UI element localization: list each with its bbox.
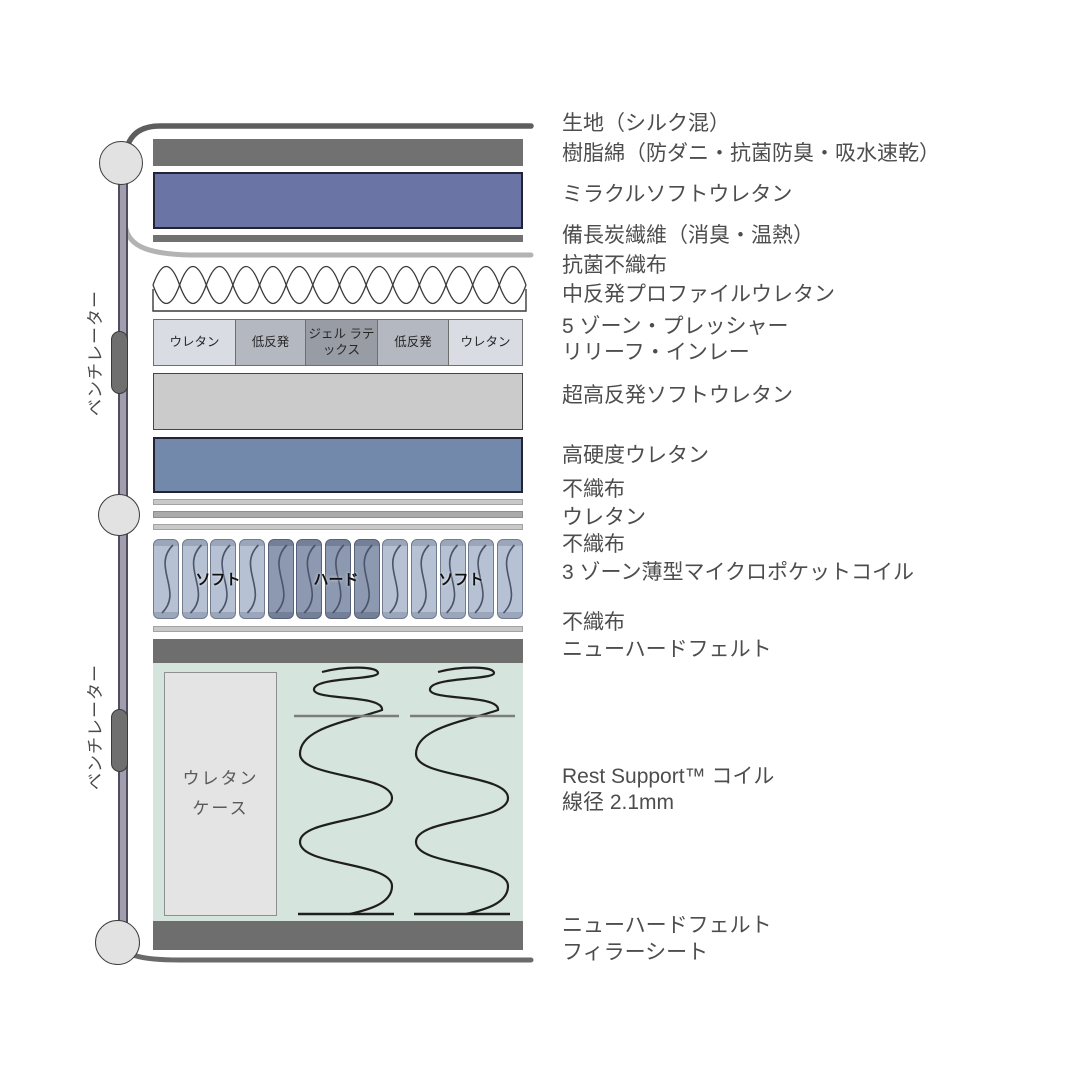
ventilator-port-bottom (95, 920, 140, 965)
layer-miracle-soft-urethane (153, 172, 523, 229)
zone-cell-urethane-right: ウレタン (449, 320, 522, 365)
label-super-high-resilience: 超高反発ソフトウレタン (562, 383, 793, 409)
label-5zone-line2: リリーフ・インレー (562, 340, 788, 366)
zone-cell-urethane-left: ウレタン (154, 320, 236, 365)
layer-new-hard-felt-bottom (153, 921, 523, 950)
label-group-bottom: ニューハードフェルト フィラーシート (562, 912, 772, 966)
label-new-hard-felt-bottom: ニューハードフェルト (562, 912, 772, 939)
layer-micro-pocket-coils: ソフト ハード ソフト (153, 539, 523, 619)
layer-charcoal-fiber (153, 235, 523, 242)
zone-cell-gel-latex: ジェル ラテックス (306, 320, 378, 365)
layer-high-hardness-urethane (153, 437, 523, 493)
label-profile-urethane: 中反発プロファイルウレタン (562, 280, 835, 310)
label-group-mid-upper: 備長炭繊維（消臭・温熱） 抗菌不織布 中反発プロファイルウレタン (562, 221, 835, 310)
label-rest-support-coil: Rest Support™ コイル (562, 764, 774, 790)
layer-urethane-thin (153, 511, 523, 518)
ventilator-tube (118, 162, 128, 945)
label-group-rest-support: Rest Support™ コイル 線径 2.1mm (562, 764, 774, 816)
label-group-cover: 生地（シルク混） 樹脂綿（防ダニ・抗菌防臭・吸水速乾） (562, 109, 940, 168)
ventilator-port-middle (98, 494, 140, 536)
label-5zone-line1: 5 ゾーン・プレッシャー (562, 314, 788, 340)
coil-zone-label-hard: ハード (313, 569, 358, 590)
rest-support-coil-right (408, 664, 518, 916)
label-antibacterial-nonwoven: 抗菌不織布 (562, 251, 835, 281)
label-group-5zone: 5 ゾーン・プレッシャー リリーフ・インレー (562, 314, 788, 366)
label-fabric: 生地（シルク混） (562, 109, 940, 139)
label-high-hardness-urethane: 高硬度ウレタン (562, 443, 709, 469)
layer-nonwoven-1 (153, 499, 523, 505)
label-urethane: ウレタン (562, 504, 914, 532)
layer-5zone-inlay: ウレタン 低反発 ジェル ラテックス 低反発 ウレタン (153, 319, 523, 366)
label-filler-sheet: フィラーシート (562, 939, 772, 966)
label-wire-diameter: 線径 2.1mm (562, 790, 774, 816)
label-new-hard-felt-top: ニューハードフェルト (562, 637, 772, 664)
label-resin-cotton: 樹脂綿（防ダニ・抗菌防臭・吸水速乾） (562, 139, 940, 169)
layer-nonwoven-3 (153, 626, 523, 632)
rest-support-coil-left (292, 664, 402, 916)
urethane-case-box: ウレタン ケース (164, 672, 277, 916)
ventilator-valve-bottom (111, 709, 128, 772)
coil-zone-label-soft-right: ソフト (438, 569, 483, 590)
label-group-coil-upper: 不織布 ウレタン 不織布 3 ゾーン薄型マイクロポケットコイル (562, 476, 914, 586)
label-miracle-soft-urethane: ミラクルソフトウレタン (562, 182, 792, 208)
ventilator-label-top: ベンチレーター (86, 285, 106, 421)
ventilator-label-bottom: ベンチレーター (86, 659, 106, 795)
ventilator-valve-top (111, 331, 128, 394)
zone-cell-low-resilience-left: 低反発 (236, 320, 306, 365)
coil-zone-label-soft-left: ソフト (195, 569, 240, 590)
mattress-layer-diagram: ベンチレーター ベンチレーター ウレタン 低反発 ジェル ラテックス 低反発 ウ… (0, 0, 1080, 1080)
ventilator-port-top (99, 141, 143, 185)
layer-super-high-resilience-urethane (153, 373, 523, 430)
layer-nonwoven-2 (153, 524, 523, 530)
label-nonwoven-3: 不織布 (562, 610, 772, 637)
label-group-felt-top: 不織布 ニューハードフェルト (562, 610, 772, 663)
label-nonwoven-2: 不織布 (562, 531, 914, 559)
zone-cell-low-resilience-right: 低反発 (378, 320, 449, 365)
label-nonwoven-1: 不織布 (562, 476, 914, 504)
layer-profile-urethane (152, 264, 528, 312)
label-charcoal-fiber: 備長炭繊維（消臭・温熱） (562, 221, 835, 251)
layer-new-hard-felt-top (153, 639, 523, 663)
label-micro-pocket-coil: 3 ゾーン薄型マイクロポケットコイル (562, 559, 914, 587)
layer-resin-cotton (153, 139, 523, 166)
